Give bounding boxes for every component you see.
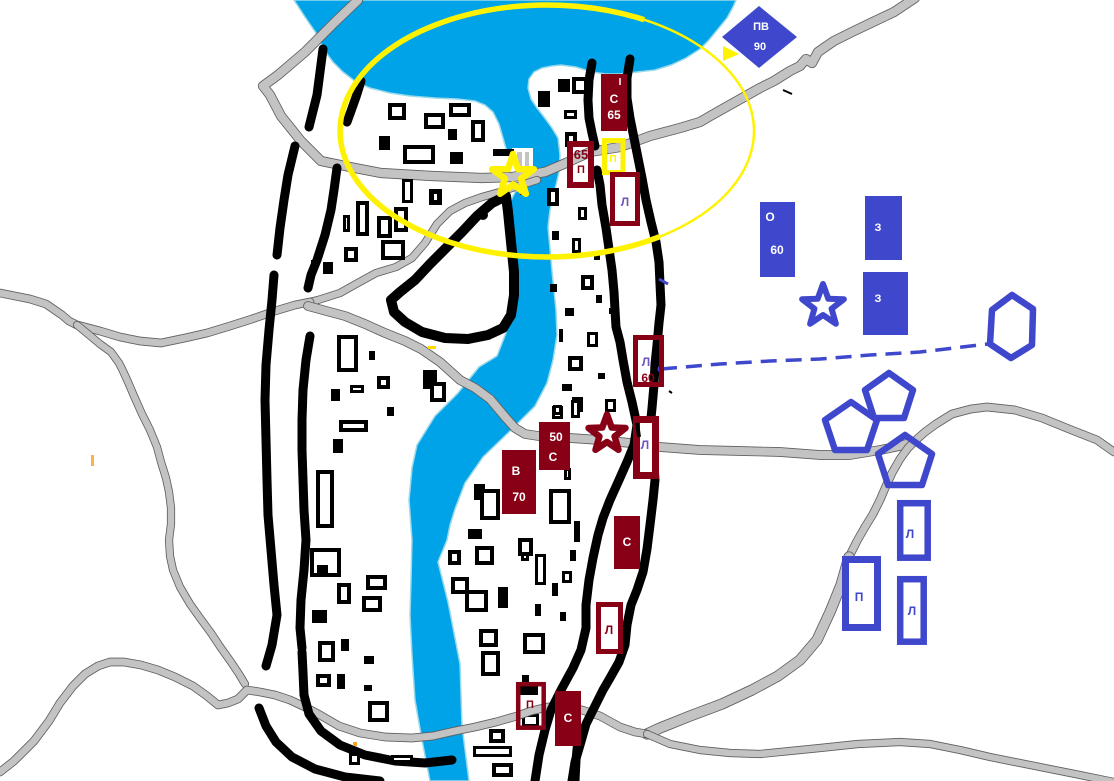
svg-text:Л: Л bbox=[621, 195, 629, 209]
svg-text:О: О bbox=[765, 210, 774, 224]
svg-text:З: З bbox=[875, 222, 882, 234]
svg-text:50: 50 bbox=[549, 430, 563, 444]
svg-text:65: 65 bbox=[574, 147, 588, 162]
svg-text:ПВ: ПВ bbox=[753, 21, 769, 33]
svg-text:Л: Л bbox=[642, 355, 650, 369]
svg-text:П: П bbox=[855, 590, 864, 604]
svg-text:П: П bbox=[609, 154, 616, 165]
svg-text:С: С bbox=[549, 450, 558, 464]
svg-text:Л: Л bbox=[605, 623, 613, 637]
svg-text:С: С bbox=[623, 535, 632, 549]
svg-text:60: 60 bbox=[770, 243, 784, 257]
svg-text:Л: Л bbox=[906, 527, 914, 541]
svg-text:С: С bbox=[610, 92, 619, 106]
svg-text:Л: Л bbox=[641, 438, 649, 452]
svg-text:60: 60 bbox=[641, 371, 655, 385]
svg-text:С: С bbox=[564, 711, 573, 725]
svg-text:65: 65 bbox=[607, 108, 621, 122]
svg-text:В: В bbox=[512, 464, 521, 478]
svg-text:З: З bbox=[875, 293, 882, 305]
svg-text:П: П bbox=[577, 164, 585, 176]
svg-text:90: 90 bbox=[754, 41, 766, 53]
svg-text:Л: Л bbox=[908, 604, 916, 618]
svg-text:70: 70 bbox=[512, 490, 526, 504]
svg-text:П: П bbox=[526, 699, 534, 711]
